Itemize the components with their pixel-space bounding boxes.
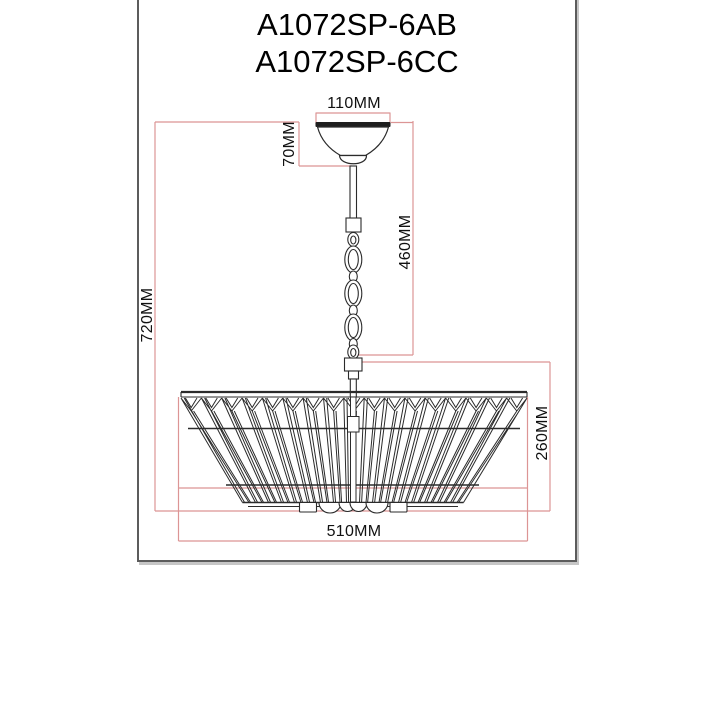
dim-shade-height: 260MM (533, 398, 553, 468)
page: { "title": { "models": ["A1072SP-6AB", "… (0, 0, 715, 715)
dim-chain-drop: 460MM (396, 207, 416, 277)
dim-canopy-height: 70MM (280, 109, 300, 179)
canopy-bell (318, 127, 389, 156)
center-rod (351, 397, 357, 502)
shade-drawing (181, 392, 527, 513)
dim-canopy-width: 110MM (319, 94, 389, 114)
canopy-cap (340, 156, 367, 164)
dim-shade-diameter: 510MM (319, 522, 389, 542)
chain-drawing (345, 166, 363, 397)
canopy-drawing (316, 122, 391, 164)
chain-connector-top (346, 218, 361, 232)
center-rod-coupler (348, 417, 360, 433)
canopy-top-plate (316, 122, 391, 127)
chain-rod (350, 166, 357, 219)
chain-connector-bottom (345, 358, 363, 371)
dim-overall-height: 720MM (138, 280, 158, 350)
